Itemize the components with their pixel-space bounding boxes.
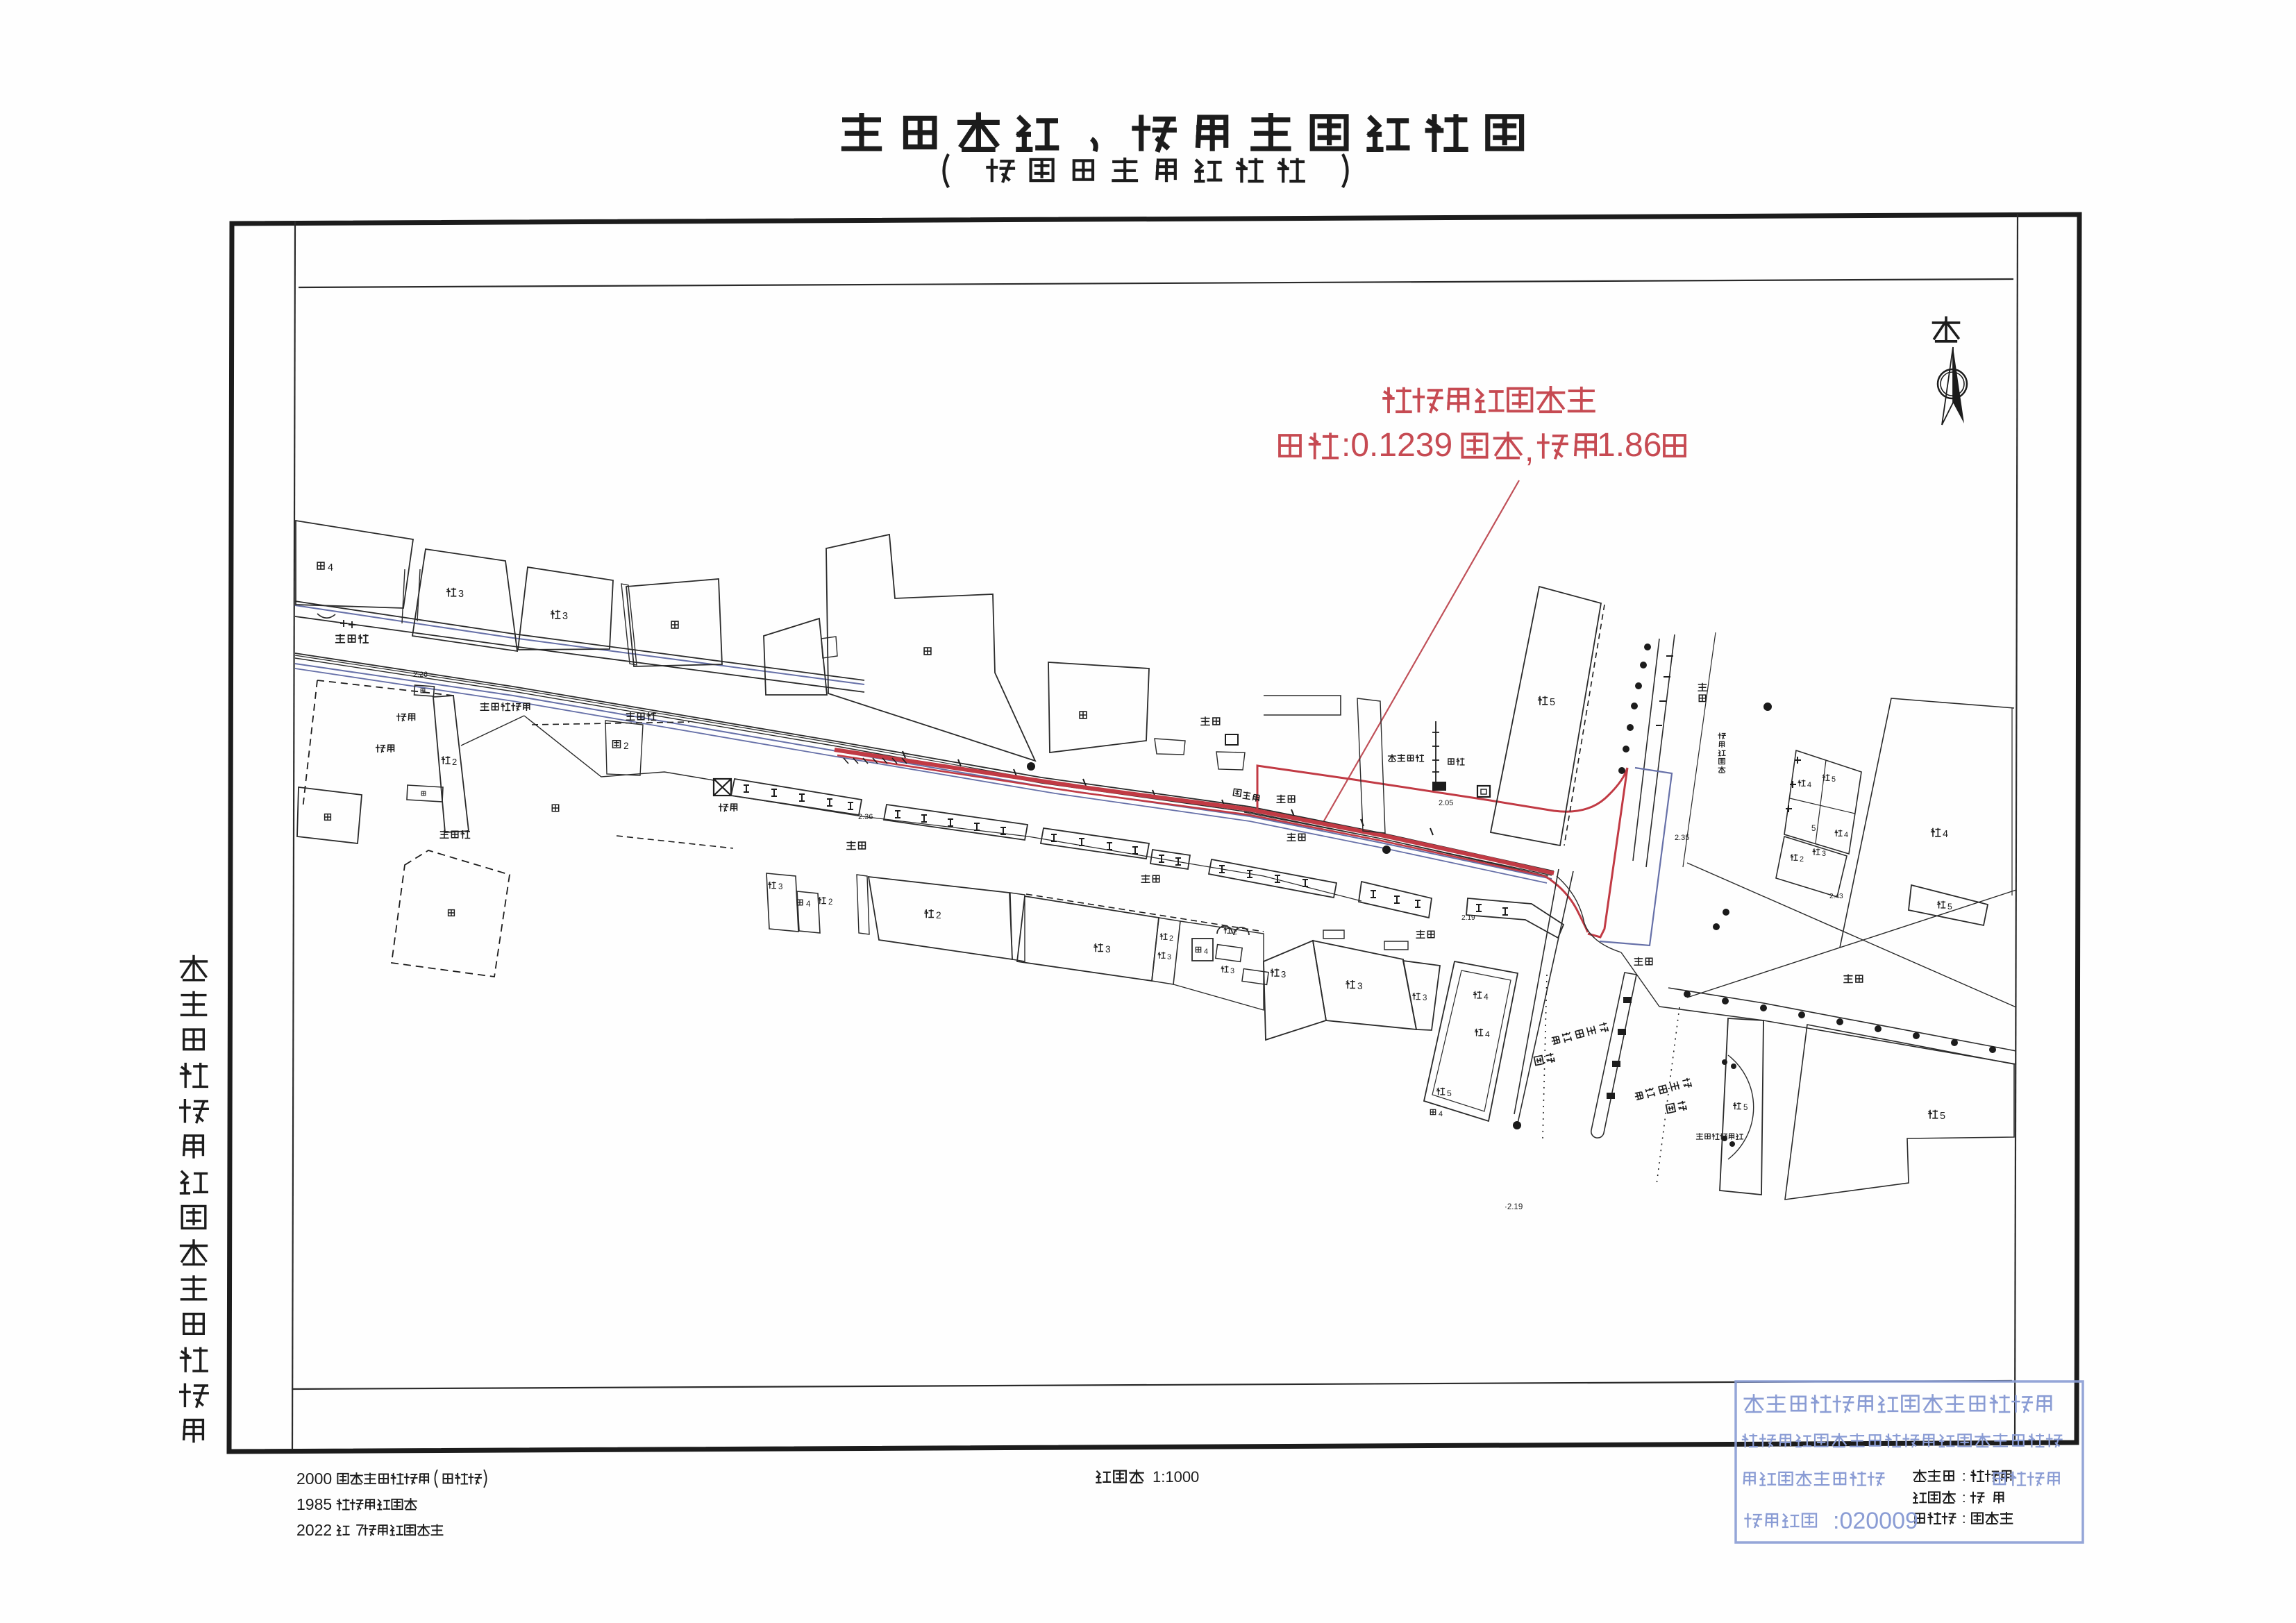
svg-text::: :: [1962, 1469, 1966, 1484]
svg-text:2: 2: [1169, 934, 1173, 943]
svg-text:7: 7: [355, 1521, 364, 1539]
svg-text:2.36: 2.36: [858, 813, 873, 821]
svg-text:4: 4: [1844, 831, 1848, 839]
svg-text:,: ,: [1525, 432, 1534, 469]
svg-text:3: 3: [1105, 944, 1111, 955]
svg-text:4: 4: [328, 562, 333, 573]
svg-text:4: 4: [1484, 992, 1489, 1002]
svg-text:1.86: 1.86: [1597, 427, 1661, 464]
svg-text:3: 3: [778, 883, 782, 891]
svg-text:2: 2: [623, 741, 629, 751]
svg-text:5: 5: [1940, 1111, 1945, 1122]
svg-text:2.35: 2.35: [1675, 834, 1689, 842]
svg-text:5: 5: [1550, 697, 1555, 708]
svg-text:5: 5: [1947, 902, 1952, 911]
svg-text:3: 3: [1230, 967, 1234, 975]
svg-text:2: 2: [452, 757, 457, 767]
svg-text::: :: [1962, 1490, 1966, 1506]
svg-text:4: 4: [1943, 829, 1948, 840]
svg-text::: :: [1962, 1511, 1966, 1527]
svg-text:2.05: 2.05: [1439, 799, 1453, 807]
svg-text:5: 5: [1447, 1088, 1452, 1098]
svg-text:3: 3: [1167, 953, 1171, 961]
svg-text:2: 2: [936, 910, 941, 920]
svg-text:2.19: 2.19: [1461, 914, 1475, 922]
svg-text:3: 3: [1423, 994, 1427, 1002]
svg-text:1:1000: 1:1000: [1153, 1468, 1199, 1486]
svg-text:4: 4: [806, 900, 811, 909]
svg-text:3: 3: [1357, 981, 1363, 991]
svg-text:3: 3: [1822, 850, 1826, 858]
svg-text:3: 3: [562, 611, 568, 622]
svg-text:2.26: 2.26: [413, 671, 428, 679]
svg-text::020009: :020009: [1833, 1508, 1918, 1534]
svg-text:3: 3: [458, 589, 464, 600]
svg-text:3: 3: [1281, 969, 1286, 979]
svg-text:5: 5: [1811, 825, 1816, 833]
svg-text:1985: 1985: [296, 1495, 332, 1513]
svg-text:5: 5: [1743, 1104, 1748, 1112]
svg-text:5: 5: [1832, 775, 1836, 784]
svg-text:4: 4: [1807, 781, 1811, 789]
svg-text:4: 4: [1439, 1110, 1443, 1118]
svg-text:2000: 2000: [296, 1470, 332, 1488]
svg-text:2: 2: [1800, 855, 1804, 864]
svg-text:4: 4: [1204, 948, 1208, 956]
svg-text:2: 2: [828, 898, 832, 907]
svg-text:4: 4: [1485, 1029, 1490, 1039]
svg-text:·2.19: ·2.19: [1505, 1203, 1523, 1211]
svg-text::0.1239: :0.1239: [1341, 427, 1452, 464]
svg-text:2022: 2022: [296, 1521, 332, 1539]
